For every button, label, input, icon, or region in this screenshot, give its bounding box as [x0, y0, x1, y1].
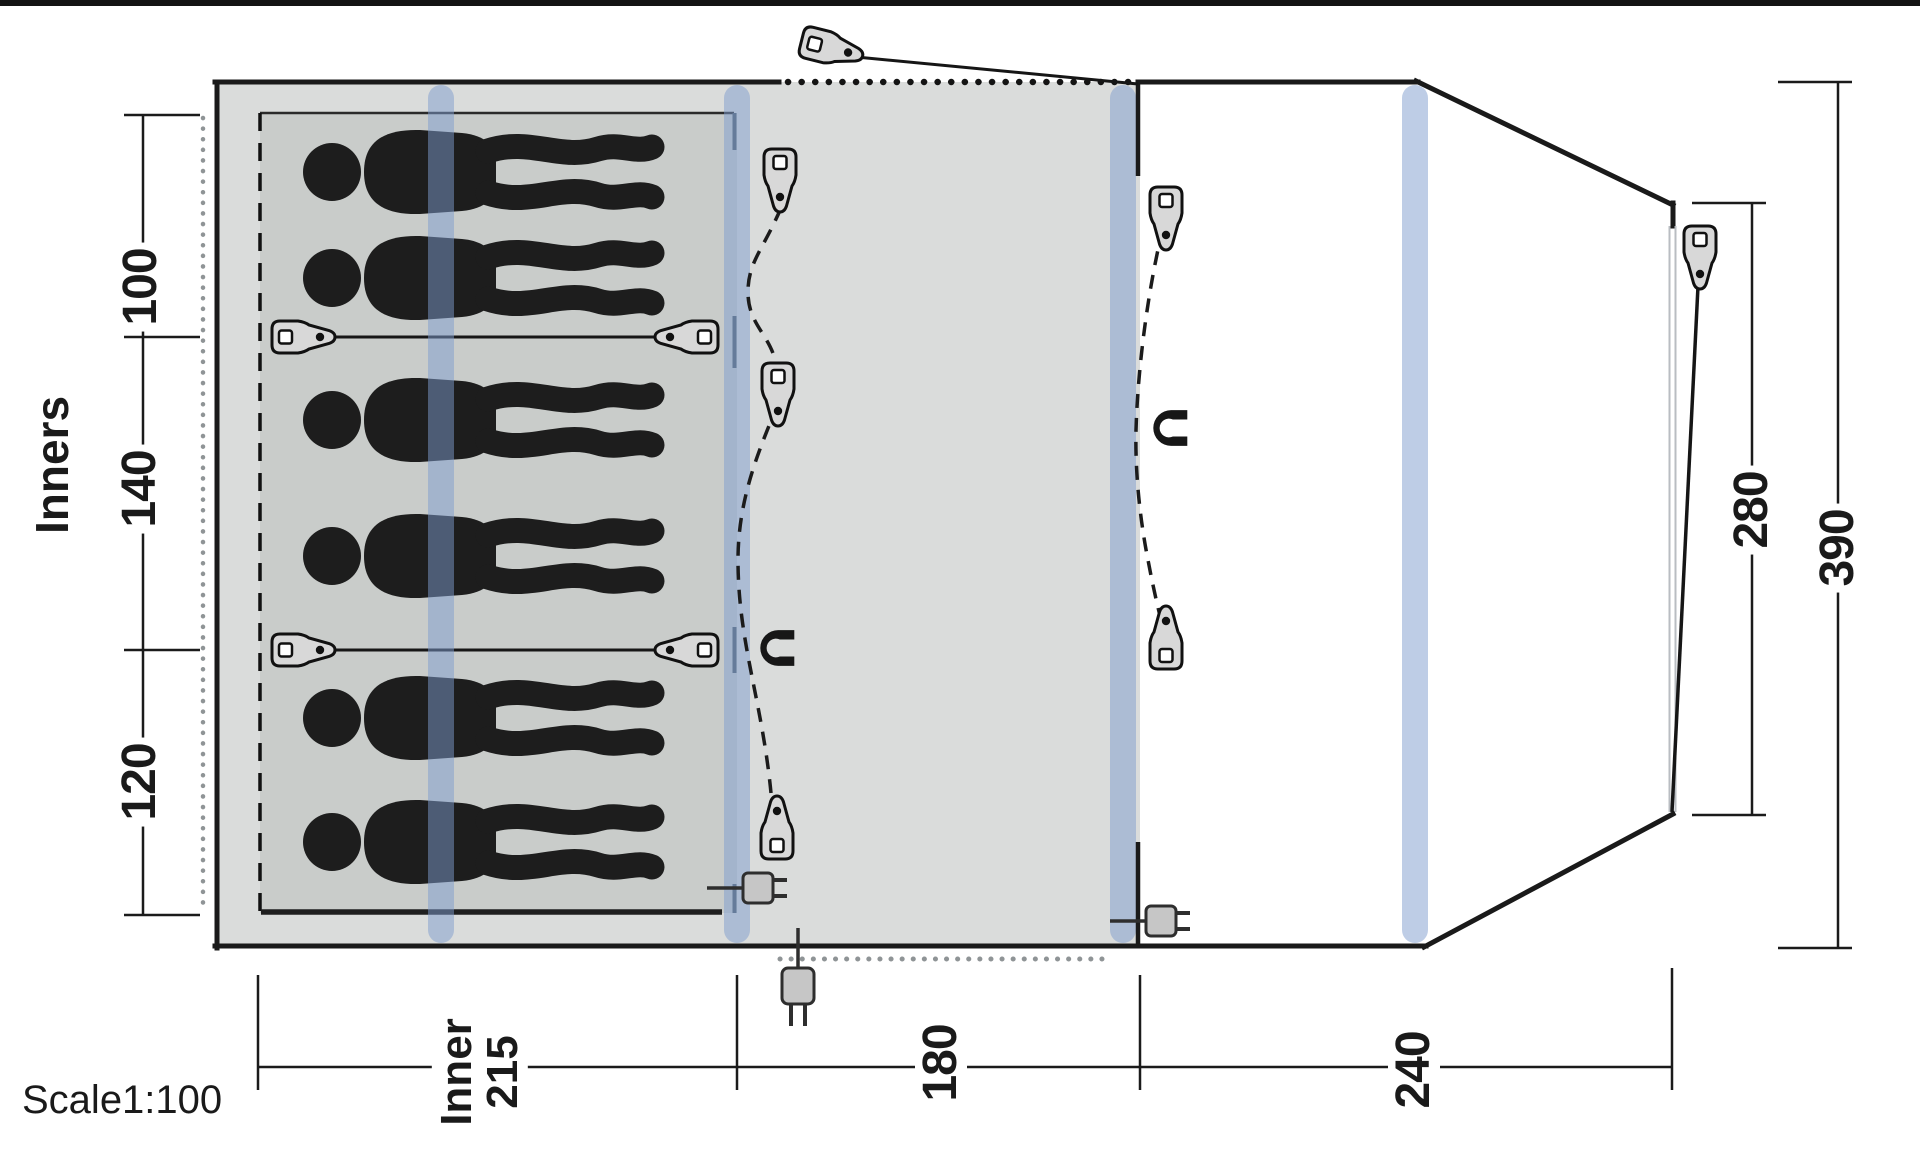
peg-icon: [1684, 226, 1716, 289]
dim-label-180: 180: [915, 1018, 967, 1107]
pole-band: [1110, 85, 1136, 943]
tent-floorplan-diagram: Inners 100 140 120 Inner 215 180 240 280…: [0, 0, 1920, 1164]
dim-label-140: 140: [114, 444, 166, 533]
pole-band: [1402, 85, 1428, 943]
dim-label-120: 120: [114, 737, 166, 826]
dim-label-100: 100: [115, 242, 167, 331]
inners-axis-label: Inners: [27, 390, 77, 540]
floorplan-drawing: [0, 0, 1920, 1164]
pole-band: [428, 85, 454, 943]
inner-word: Inner: [434, 1018, 480, 1126]
inner-tent-floor: [260, 113, 737, 913]
inner-value: 215: [480, 1018, 526, 1126]
dim-label-240: 240: [1388, 1025, 1440, 1114]
peg-icon: [798, 25, 867, 71]
dim-label-280: 280: [1726, 465, 1778, 554]
pole-band: [724, 85, 750, 943]
dim-label-390: 390: [1812, 503, 1864, 592]
dim-label-inner-215: Inner 215: [432, 1012, 528, 1132]
scale-note: Scale1:100: [22, 1080, 222, 1120]
